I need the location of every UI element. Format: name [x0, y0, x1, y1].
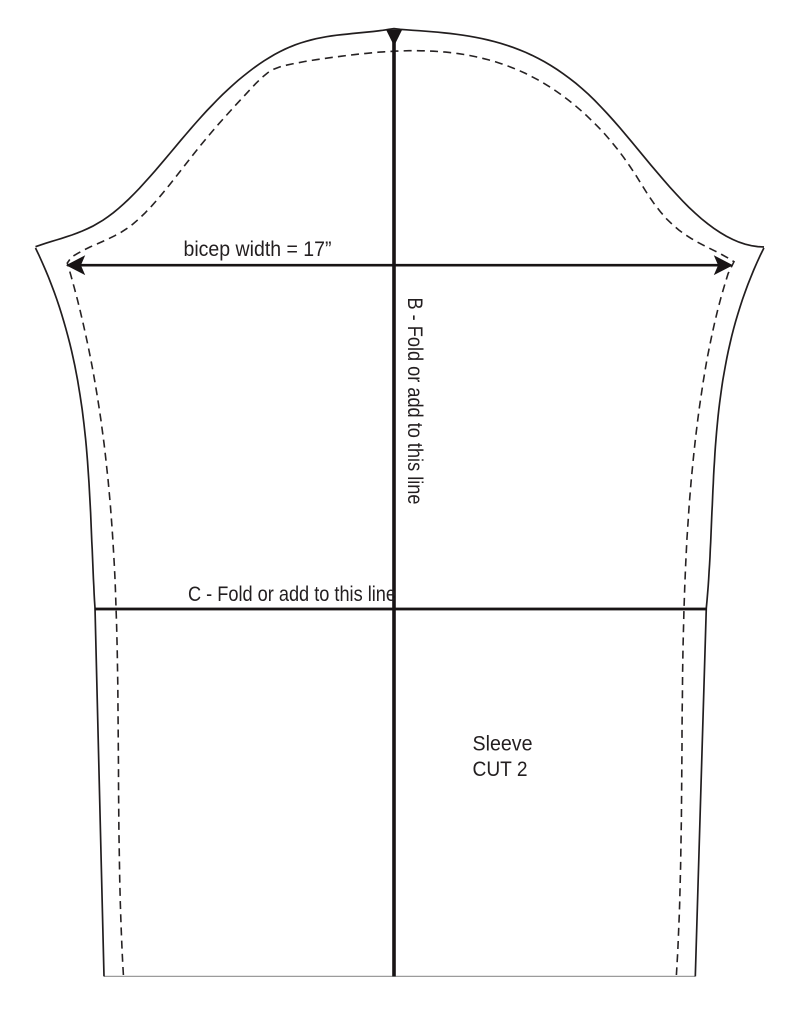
svg-text:Sleeve: Sleeve: [473, 732, 533, 756]
svg-text:C - Fold or add to this line: C - Fold or add to this line: [188, 582, 396, 606]
svg-text:bicep width = 17”: bicep width = 17”: [184, 237, 332, 261]
svg-text:B - Fold or add to this line: B - Fold or add to this line: [403, 298, 427, 505]
svg-text:CUT 2: CUT 2: [473, 757, 528, 781]
